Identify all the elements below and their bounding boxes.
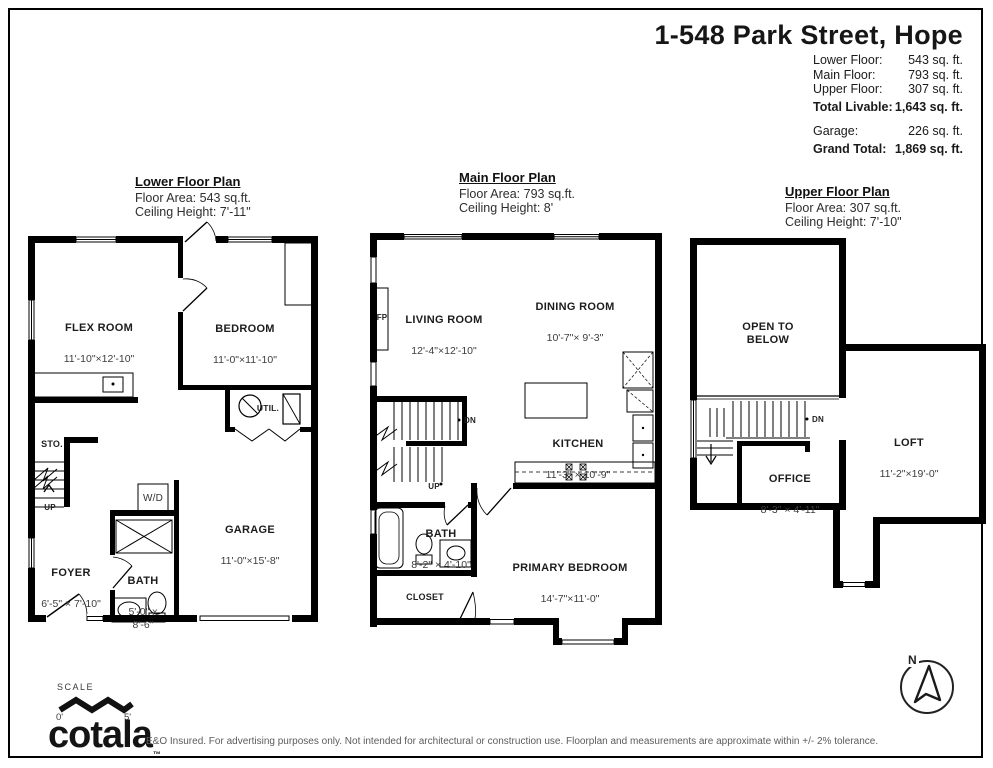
- room-kitchen: KITCHEN 11'-3" × 10'-9": [546, 420, 611, 500]
- room-closet: CLOSET: [406, 592, 444, 602]
- door-icon: [183, 279, 207, 311]
- area-summary: Lower Floor: 543 sq. ft. Main Floor: 793…: [813, 53, 963, 156]
- upper-plan-header: Upper Floor Plan Floor Area: 307 sq.ft. …: [785, 185, 902, 229]
- disclaimer-text: E&O Insured. For advertising purposes on…: [146, 736, 878, 747]
- total-livable-value: 1,643 sq. ft.: [895, 100, 963, 115]
- area-value: 307 sq. ft.: [908, 82, 963, 97]
- door-icon: [459, 592, 476, 621]
- north-label: N: [906, 653, 919, 667]
- scale-bar: [60, 700, 132, 710]
- page-title: 1-548 Park Street, Hope: [654, 20, 963, 51]
- room-name: BATH: [128, 575, 159, 588]
- room-open-to-below: OPEN TO BELOW: [742, 303, 793, 365]
- room-bedroom: BEDROOM 11'-0"×11'-10": [213, 305, 277, 385]
- floorplan-page: 1-548 Park Street, Hope Lower Floor: 543…: [0, 0, 993, 768]
- area-value: 793 sq. ft.: [908, 68, 963, 83]
- room-bath-lower: BATH 5'-0" x 8'-6": [128, 557, 159, 650]
- area-value: 543 sq. ft.: [908, 53, 963, 68]
- main-plan-title: Main Floor Plan: [459, 171, 575, 185]
- room-garage: GARAGE 11'-0"×15'-8": [221, 506, 280, 586]
- lower-plan-ceiling-height: Ceiling Height: 7'-11": [135, 205, 251, 219]
- room-dims: 11'-0"×15'-8": [221, 555, 280, 568]
- water-heater-icon: [283, 394, 300, 424]
- area-row: Main Floor: 793 sq. ft.: [813, 68, 963, 83]
- room-dims: 8'-2" × 4'-10": [411, 559, 471, 572]
- room-dims: 11'-3" × 10'-9": [546, 469, 611, 482]
- room-foyer: FOYER 6'-5" × 7'-10": [41, 549, 101, 629]
- room-name: OPEN TO BELOW: [742, 321, 793, 347]
- room-dims: 11'-0"×11'-10": [213, 354, 277, 367]
- door-icon: [477, 488, 511, 515]
- fireplace-label: FP: [377, 313, 388, 322]
- upper-plan-title: Upper Floor Plan: [785, 185, 902, 199]
- grand-total-row: Grand Total: 1,869 sq. ft.: [813, 142, 963, 157]
- area-row: Lower Floor: 543 sq. ft.: [813, 53, 963, 68]
- room-utility: UTIL.: [257, 403, 279, 413]
- window-icon: [843, 580, 865, 589]
- stairs: [34, 462, 64, 507]
- room-dims: 10'-7"× 9'-3": [535, 332, 614, 345]
- bifold-door-icon: [235, 429, 300, 441]
- door-icon: [183, 222, 216, 244]
- oven-icon: [627, 390, 653, 412]
- room-primary-bedroom: PRIMARY BEDROOM 14'-7"×11'-0": [512, 544, 627, 624]
- garage-value: 226 sq. ft.: [908, 124, 963, 139]
- trademark-symbol: ™: [153, 750, 161, 759]
- shower-icon: [116, 520, 172, 553]
- total-livable-label: Total Livable:: [813, 100, 893, 115]
- lower-plan-title: Lower Floor Plan: [135, 175, 251, 189]
- room-name: KITCHEN: [546, 438, 611, 451]
- room-dining: DINING ROOM 10'-7"× 9'-3": [535, 283, 614, 363]
- room-name: DINING ROOM: [535, 301, 614, 314]
- window-icon: [689, 400, 698, 458]
- kitchen-island: [525, 383, 587, 418]
- room-dims: 11'-10"×12'-10": [64, 353, 135, 366]
- lower-plan-header: Lower Floor Plan Floor Area: 543 sq.ft. …: [135, 175, 251, 219]
- north-arrow-icon: [901, 661, 953, 713]
- room-name: LOFT: [880, 437, 939, 450]
- room-name: OFFICE: [761, 473, 820, 486]
- closet-outline: [285, 243, 314, 305]
- bathtub-icon: [375, 508, 403, 568]
- lower-plan-floor-area: Floor Area: 543 sq.ft.: [135, 191, 251, 205]
- scale-label: SCALE: [57, 682, 94, 692]
- area-label: Main Floor:: [813, 68, 876, 83]
- room-name: FOYER: [41, 567, 101, 580]
- main-plan-ceiling-height: Ceiling Height: 8': [459, 201, 575, 215]
- stairs-up-label: UP: [44, 503, 56, 512]
- stairs-up-label: UP: [428, 482, 440, 491]
- room-office: OFFICE 8'-3" × 4'-11": [761, 455, 820, 535]
- garage-row: Garage: 226 sq. ft.: [813, 124, 963, 139]
- room-name: BATH: [411, 528, 471, 541]
- stairs-dn-label: DN: [812, 415, 824, 424]
- room-loft: LOFT 11'-2"×19'-0": [880, 419, 939, 499]
- garage-label: Garage:: [813, 124, 858, 139]
- room-name: FLEX ROOM: [64, 322, 135, 335]
- room-name: GARAGE: [221, 524, 280, 537]
- fridge-icon: [623, 352, 653, 388]
- room-dims: 14'-7"×11'-0": [512, 593, 627, 606]
- stairs-dn-label: DN: [464, 416, 476, 425]
- total-livable-row: Total Livable: 1,643 sq. ft.: [813, 100, 963, 115]
- room-dims: 11'-2"×19'-0": [880, 468, 939, 481]
- cotala-logo: cotala™: [48, 714, 160, 757]
- room-living: LIVING ROOM 12'-4"×12'-10": [405, 296, 482, 376]
- main-plan-header: Main Floor Plan Floor Area: 793 sq.ft. C…: [459, 171, 575, 215]
- area-row: Upper Floor: 307 sq. ft.: [813, 82, 963, 97]
- grand-total-value: 1,869 sq. ft.: [895, 142, 963, 157]
- room-bath-main: BATH 8'-2" × 4'-10": [411, 510, 471, 590]
- upper-floor-drawing: [689, 238, 986, 589]
- room-dims: 5'-0" x 8'-6": [128, 606, 159, 632]
- upper-plan-ceiling-height: Ceiling Height: 7'-10": [785, 215, 902, 229]
- room-name: LIVING ROOM: [405, 314, 482, 327]
- grand-total-label: Grand Total:: [813, 142, 886, 157]
- room-dims: 6'-5" × 7'-10": [41, 598, 101, 611]
- area-label: Upper Floor:: [813, 82, 882, 97]
- room-dims: 12'-4"×12'-10": [405, 345, 482, 358]
- washer-dryer-label: W/D: [143, 493, 163, 504]
- garage-door-icon: [197, 614, 292, 623]
- room-dims: 8'-3" × 4'-11": [761, 504, 820, 517]
- room-name: BEDROOM: [213, 323, 277, 336]
- main-plan-floor-area: Floor Area: 793 sq.ft.: [459, 187, 575, 201]
- room-storage: STO.: [41, 439, 63, 449]
- cotala-logo-text: cotala: [48, 714, 152, 756]
- room-name: PRIMARY BEDROOM: [512, 562, 627, 575]
- room-flex: FLEX ROOM 11'-10"×12'-10": [64, 304, 135, 384]
- area-label: Lower Floor:: [813, 53, 882, 68]
- upper-plan-floor-area: Floor Area: 307 sq.ft.: [785, 201, 902, 215]
